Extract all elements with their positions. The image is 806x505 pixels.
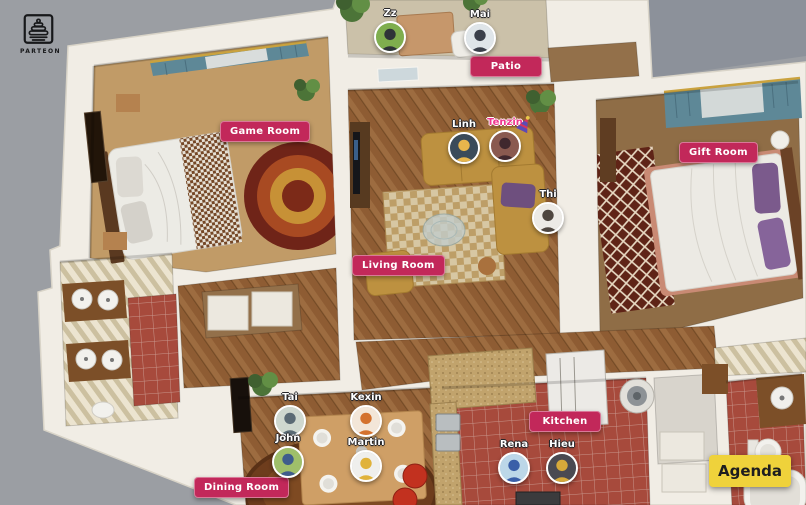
avatar-photo [498, 452, 530, 484]
portrait-silhouette [491, 132, 519, 160]
floor-plan [0, 0, 806, 505]
portrait-silhouette [352, 407, 380, 435]
avatar-john[interactable]: John [272, 446, 304, 478]
bed [643, 147, 806, 299]
portrait-silhouette [466, 24, 494, 52]
avatar-hieu[interactable]: Hieu [546, 452, 578, 484]
avatar-name: Mai [470, 9, 490, 20]
avatar-tenzin[interactable]: Tenzin [489, 130, 521, 162]
portrait-silhouette [548, 454, 576, 482]
room-label-living-room[interactable]: Living Room [352, 255, 445, 276]
avatar-name: Linh [452, 119, 476, 130]
cabinet [702, 364, 728, 394]
room-label-text: Kitchen [542, 416, 587, 427]
dresser [600, 118, 616, 182]
avatar-photo [374, 21, 406, 53]
stove [516, 492, 560, 505]
avatar-photo [532, 202, 564, 234]
room-label-text: Living Room [362, 260, 435, 271]
avatar-name: Rena [500, 439, 528, 450]
portrait-silhouette [534, 204, 562, 232]
red-stool [403, 464, 427, 488]
avatar-photo [546, 452, 578, 484]
portrait-silhouette [376, 23, 404, 51]
shower-left [128, 294, 180, 406]
entry-corridor-floor [548, 42, 639, 82]
portrait-silhouette [274, 448, 302, 476]
nightstand-2 [103, 232, 127, 250]
room-label-dining-room[interactable]: Dining Room [194, 477, 289, 498]
sink [436, 414, 460, 431]
room-label-kitchen[interactable]: Kitchen [529, 411, 601, 432]
wall-art [230, 377, 252, 432]
avatar-mai[interactable]: Mai [464, 22, 496, 54]
avatar-martin[interactable]: Martin [350, 450, 382, 482]
portrait-silhouette [276, 407, 304, 435]
avatar-thi[interactable]: Thi [532, 202, 564, 234]
virtual-space-stage: PARTEON Agenda Patio Game Room Gift Room… [0, 0, 806, 505]
nightstand [116, 94, 140, 112]
avatar-photo [350, 405, 382, 437]
portrait-silhouette [352, 452, 380, 480]
avatar-name: Zz [383, 8, 396, 19]
logo-text: PARTEON [20, 48, 56, 55]
avatar-name: John [276, 433, 301, 444]
avatar-photo [448, 132, 480, 164]
dryer [660, 432, 704, 460]
portrait-silhouette [500, 454, 528, 482]
avatar-photo [272, 446, 304, 478]
room-label-text: Game Room [230, 126, 300, 137]
portrait-silhouette [450, 134, 478, 162]
avatar-rena[interactable]: Rena [498, 452, 530, 484]
room-label-game-room[interactable]: Game Room [220, 121, 310, 142]
avatar-linh[interactable]: Linh [448, 132, 480, 164]
avatar-name: Tai [282, 392, 298, 403]
cake-icon [22, 12, 55, 46]
toilet [92, 402, 114, 418]
avatar-name: Kexin [350, 392, 381, 403]
avatar-name: Martin [348, 437, 385, 448]
pouf [478, 257, 496, 275]
agenda-button[interactable]: Agenda [709, 455, 791, 487]
room-label-text: Dining Room [204, 482, 279, 493]
avatar-zz[interactable]: Zz [374, 21, 406, 53]
avatar-kexin[interactable]: Kexin [350, 405, 382, 437]
round-lamp [771, 131, 789, 149]
avatar-photo [489, 130, 521, 162]
room-label-text: Patio [491, 61, 521, 72]
avatar-name: Thi [539, 189, 556, 200]
avatar-photo [350, 450, 382, 482]
parteon-logo: PARTEON [20, 12, 56, 55]
room-label-gift-room[interactable]: Gift Room [679, 142, 758, 163]
room-label-patio[interactable]: Patio [470, 56, 542, 77]
coffee-table [423, 214, 465, 246]
counter [428, 348, 536, 410]
room-label-text: Gift Room [689, 147, 748, 158]
avatar-name: Hieu [549, 439, 575, 450]
avatar-photo [464, 22, 496, 54]
